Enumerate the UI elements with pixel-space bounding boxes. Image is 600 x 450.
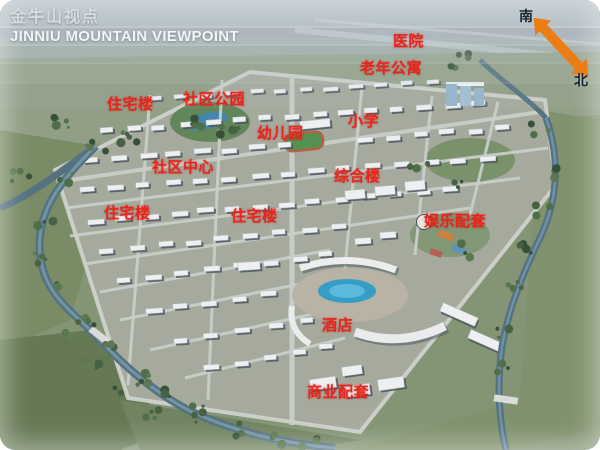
map-label: 住宅楼 (107, 93, 154, 114)
title-block: 金牛山视点 JINNIU MOUNTAIN VIEWPOINT (10, 3, 239, 45)
map-label: 医院 (393, 30, 424, 51)
map-label: 老年公寓 (360, 57, 422, 78)
map-label: 社区公园 (183, 88, 245, 109)
map-label: 幼儿园 (257, 122, 304, 143)
viewpoint-title-en: JINNIU MOUNTAIN VIEWPOINT (10, 28, 239, 45)
map-label: 小学 (348, 110, 379, 131)
compass-north-label: 北 (574, 70, 588, 90)
compass: 南 北 (510, 0, 600, 95)
map-label: 娱乐配套 (424, 210, 486, 231)
map-label: 住宅楼 (104, 202, 151, 223)
map-label: 综合楼 (334, 165, 381, 186)
map-label: 住宅楼 (231, 205, 278, 226)
map-label: 社区中心 (152, 156, 214, 177)
compass-south-label: 南 (519, 6, 533, 26)
masterplan-image: 金牛山视点 JINNIU MOUNTAIN VIEWPOINT 医院老年公寓社区… (0, 0, 600, 450)
map-label: 酒店 (322, 314, 353, 335)
map-label: 商业配套 (307, 381, 369, 402)
viewpoint-title-cn: 金牛山视点 (10, 3, 239, 27)
